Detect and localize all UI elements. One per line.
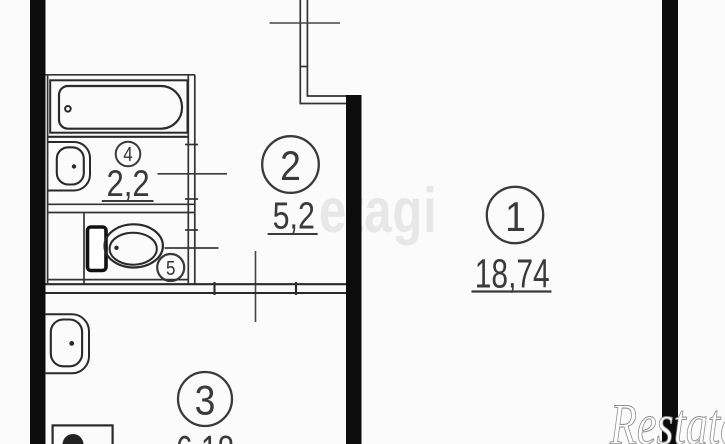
svg-text:1: 1 bbox=[505, 194, 526, 240]
svg-text:2,2: 2,2 bbox=[107, 163, 150, 204]
svg-text:6,18: 6,18 bbox=[176, 427, 234, 444]
svg-text:Restate: Restate bbox=[609, 393, 725, 444]
svg-text:etagi: etagi bbox=[319, 175, 438, 245]
svg-text:3: 3 bbox=[195, 378, 216, 424]
svg-text:2: 2 bbox=[280, 143, 301, 189]
svg-text:5,2: 5,2 bbox=[273, 195, 315, 237]
svg-text:5: 5 bbox=[166, 256, 175, 279]
svg-text:4: 4 bbox=[123, 143, 132, 166]
svg-text:18,74: 18,74 bbox=[475, 251, 550, 297]
